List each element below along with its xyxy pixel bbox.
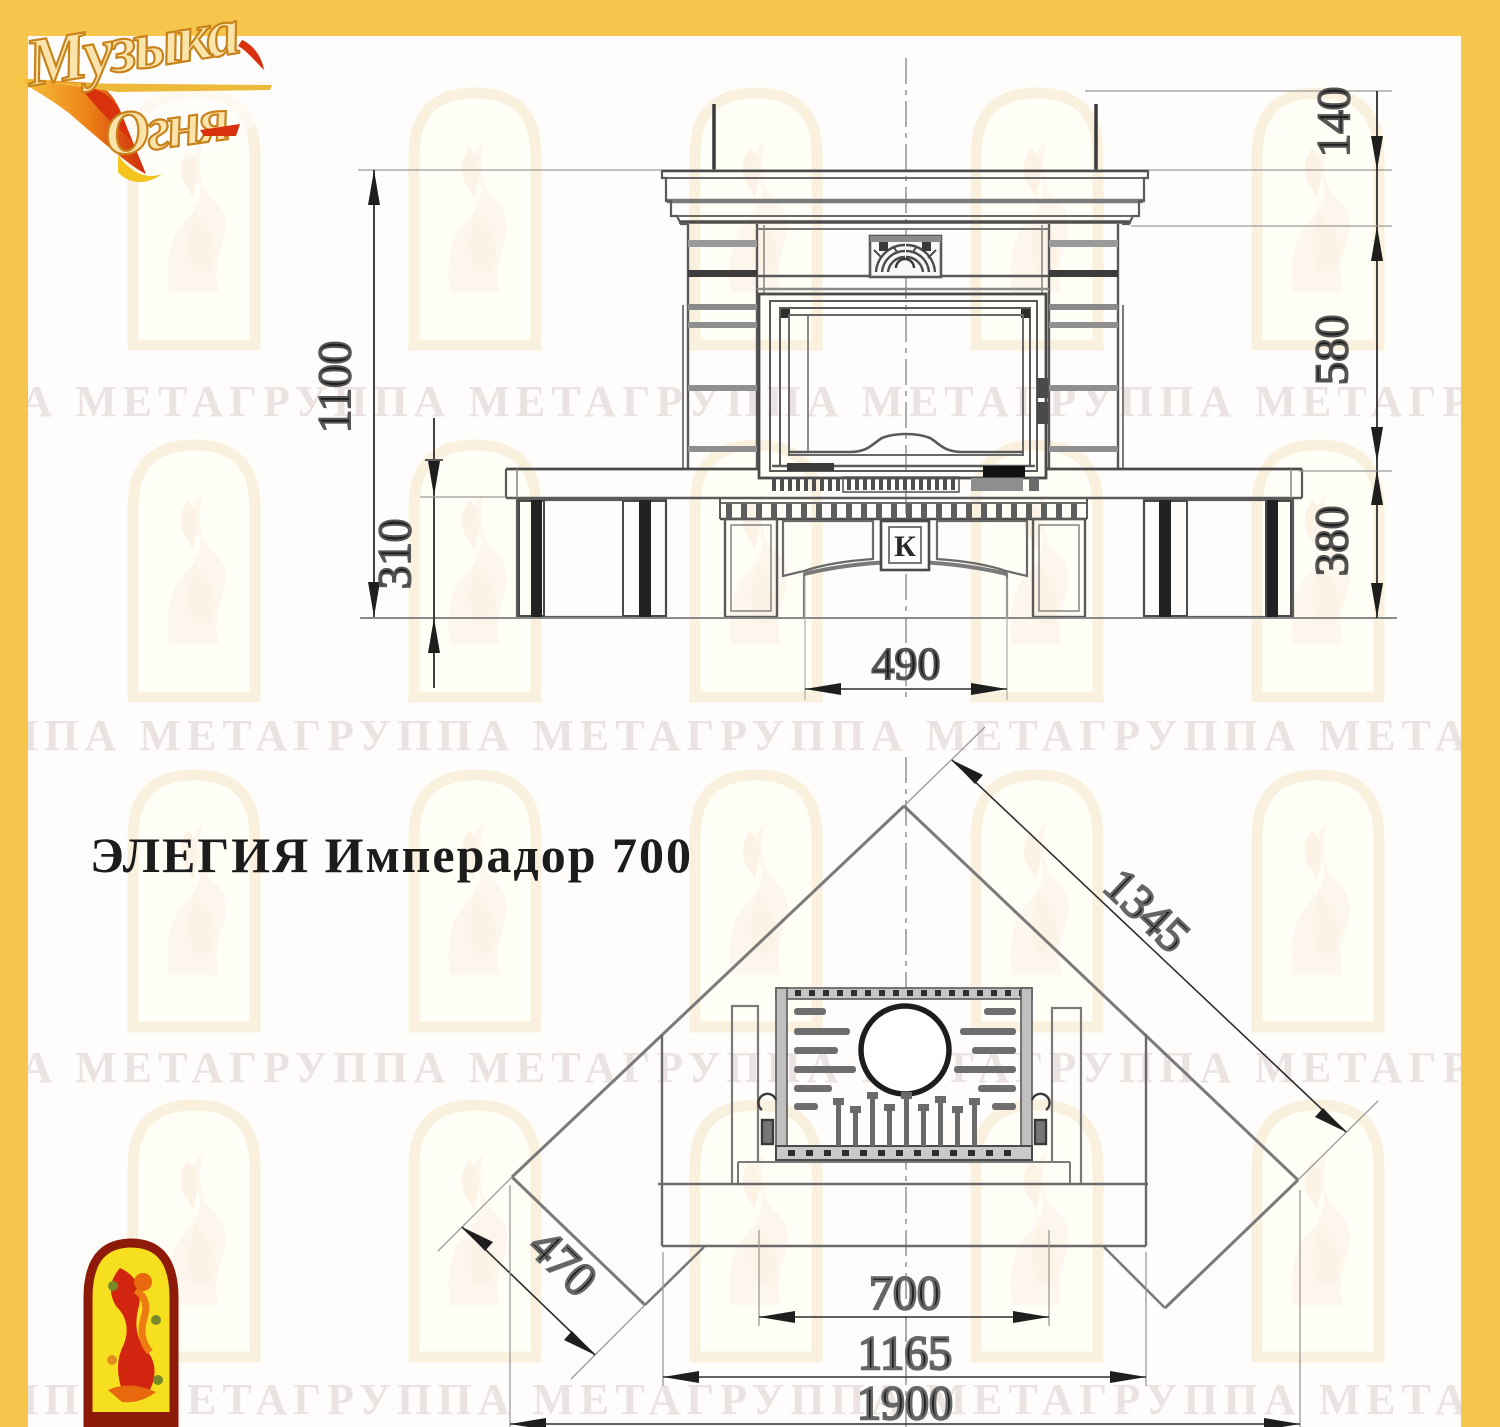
svg-text:140: 140 — [1308, 87, 1360, 158]
svg-text:700: 700 — [869, 1267, 941, 1320]
svg-text:1100: 1100 — [309, 341, 361, 433]
svg-text:1165: 1165 — [858, 1327, 952, 1380]
svg-text:490: 490 — [872, 638, 941, 689]
svg-text:310: 310 — [369, 519, 421, 590]
svg-text:ГРУППА МЕТАГРУППА МЕТАГРУППА М: ГРУППА МЕТАГРУППА МЕТАГРУППА МЕТАГРУППА … — [0, 1375, 1472, 1424]
svg-text:580: 580 — [1306, 315, 1358, 386]
svg-text:380: 380 — [1306, 506, 1358, 577]
svg-text:ППА МЕТАГРУППА МЕТАГРУППА МЕТА: ППА МЕТАГРУППА МЕТАГРУППА МЕТАГРУППА МЕТ… — [0, 1043, 1500, 1092]
svg-text:К: К — [894, 530, 916, 563]
svg-text:ГРУППА МЕТАГРУППА МЕТАГРУППА М: ГРУППА МЕТАГРУППА МЕТАГРУППА МЕТАГРУППА … — [0, 711, 1472, 760]
svg-text:ППА МЕТАГРУППА МЕТАГРУППА МЕТА: ППА МЕТАГРУППА МЕТАГРУППА МЕТАГРУППА МЕТ… — [0, 377, 1500, 426]
svg-text:1900: 1900 — [857, 1377, 953, 1427]
svg-text:ЭЛЕГИЯ Имперадор 700: ЭЛЕГИЯ Имперадор 700 — [90, 827, 693, 883]
